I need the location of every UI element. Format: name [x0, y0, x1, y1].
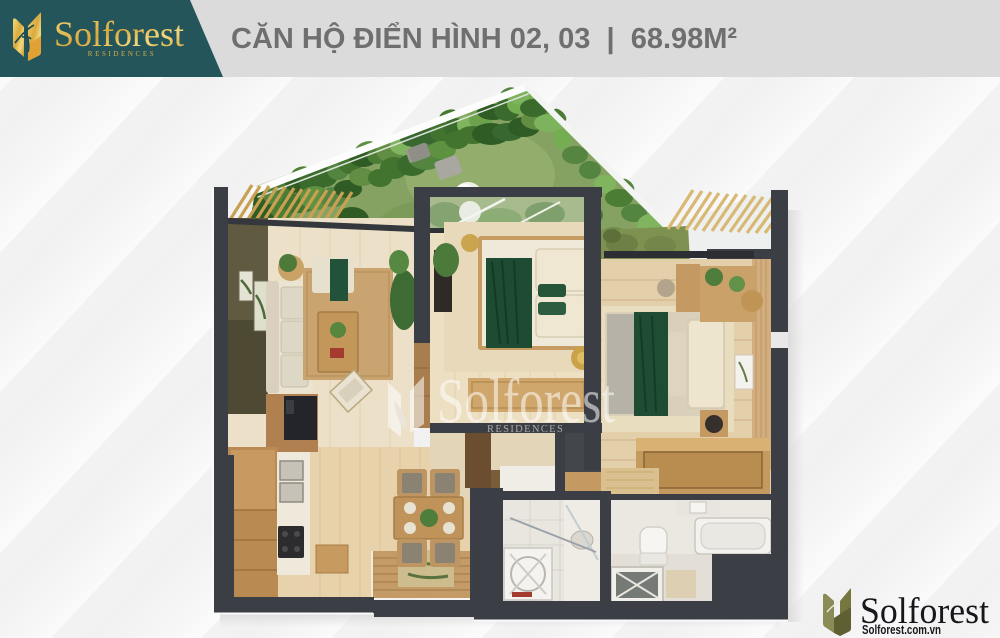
svg-text:Solforest.com.vn: Solforest.com.vn: [862, 622, 941, 637]
